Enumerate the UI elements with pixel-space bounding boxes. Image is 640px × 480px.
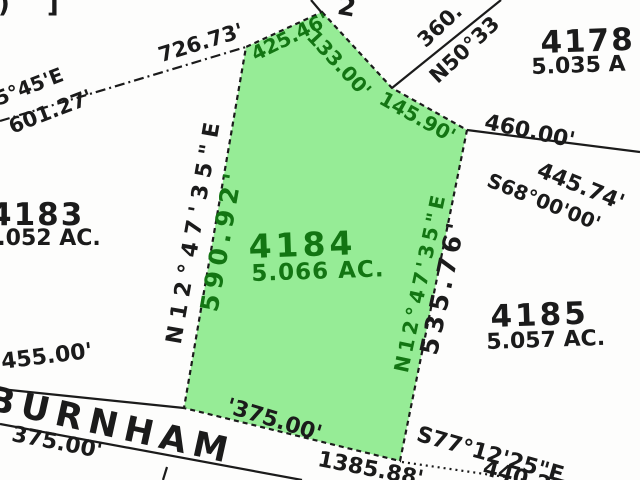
plat-map: ) ] 2 726.73' 5°45'E 601.27' 360. N50°33… <box>0 0 640 480</box>
parcel-4183-area: 5.052 AC. <box>0 228 101 250</box>
parcel-4184-area: 5.066 AC. <box>251 258 385 286</box>
parcel-4185-area: 5.057 AC. <box>486 328 605 354</box>
edge-fragment-top-left: ) ] <box>0 0 73 17</box>
parcel-4178-area: 5.035 A <box>531 54 626 79</box>
property-line-below-road <box>163 467 167 480</box>
